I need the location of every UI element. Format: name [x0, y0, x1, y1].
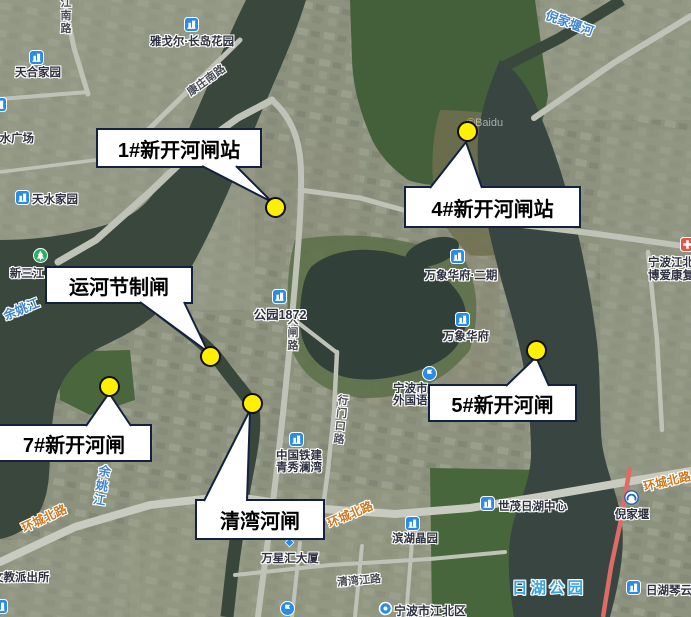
poi-line: 博爱康复 [648, 270, 691, 282]
callout-gate-7: 7#新开河闸 [0, 424, 152, 462]
poi-tiejian-qingxiulanwan[interactable]: 中国铁建 青秀澜湾 [276, 450, 322, 474]
callout-gate-5: 5#新开河闸 [428, 384, 577, 422]
poi-line: 中国铁建 [276, 450, 322, 462]
callout-canal-control-gate: 运河节制闸 [45, 266, 193, 304]
district-icon[interactable] [378, 601, 393, 616]
school-icon[interactable] [422, 366, 437, 381]
building-icon[interactable] [480, 496, 495, 511]
poi-rihu-qinyun[interactable]: 日湖琴云 [646, 582, 691, 598]
marker-dot-qingwan-gate [242, 393, 263, 414]
marker-dot-gate-7 [99, 376, 120, 397]
poi-gongyuan-1872[interactable]: 公园1872 [254, 304, 307, 323]
park-icon[interactable] [33, 248, 48, 263]
building-icon[interactable] [289, 432, 304, 447]
poi-ningbo-waiguoyu[interactable]: 宁波市 外国语 [393, 383, 428, 407]
poi-wanxianghuafu[interactable]: 万象华府 [443, 328, 489, 344]
callout-qingwan-gate: 清湾河闸 [195, 499, 325, 540]
metro-icon[interactable] [624, 490, 639, 505]
road-label-jiangnanlu: 江南路 [57, 0, 73, 36]
map-viewport[interactable]: 余姚江 余姚江 倪家堰河 日湖公园 环城北路 环城北路 环城北路 康庄南路 江南… [0, 0, 691, 617]
school-icon[interactable] [280, 601, 295, 616]
building-icon[interactable] [15, 190, 30, 205]
poi-shimao-rihu-center[interactable]: 世茂日湖中心 [498, 498, 567, 514]
poi-nijiayan-station[interactable]: 倪家堰 [615, 506, 650, 522]
building-icon[interactable] [405, 516, 420, 531]
poi-tianshui-home[interactable]: 天水家园 [32, 191, 78, 207]
poi-tianhejiayuan[interactable]: 天合家园 [15, 64, 61, 80]
poi-wanxianghuafu-2[interactable]: 万象华府·二期 [425, 267, 498, 283]
building-icon[interactable] [0, 599, 8, 614]
callout-gate-station-1: 1#新开河闸站 [96, 128, 262, 168]
callout-label: 1#新开河闸站 [118, 134, 240, 163]
callout-gate-station-4: 4#新开河闸站 [404, 186, 581, 228]
poi-tianshui-plaza[interactable]: 天水广场 [0, 130, 34, 146]
callout-label: 运河节制闸 [69, 271, 169, 300]
poi-binhu-jingyuan[interactable]: 滨湖晶园 [392, 530, 438, 546]
poi-line: 宁波市 [393, 383, 428, 395]
poi-line: 外国语 [393, 395, 428, 407]
callout-label: 7#新开河闸 [23, 429, 125, 458]
building-icon[interactable] [29, 50, 44, 65]
marker-dot-canal-control-gate [200, 346, 221, 367]
poi-line: 宁波江北 [648, 257, 691, 269]
marker-dot-gate-5 [526, 340, 547, 361]
building-icon[interactable] [450, 249, 465, 264]
callout-label: 4#新开河闸站 [431, 193, 553, 222]
building-icon[interactable] [272, 289, 287, 304]
marker-dot-gate-station-1 [265, 197, 286, 218]
marker-dot-gate-station-4 [457, 121, 478, 142]
poi-line: 青秀澜湾 [276, 462, 322, 474]
callout-label: 5#新开河闸 [451, 389, 553, 418]
building-icon[interactable] [184, 17, 199, 32]
poi-boai-hospital[interactable]: 宁波江北 博爱康复 [648, 257, 691, 283]
poi-paichusuo[interactable]: 文教派出所 [0, 569, 50, 585]
building-icon[interactable] [0, 97, 7, 112]
poi-yageer-changdao[interactable]: 雅戈尔·长岛花园 [150, 33, 234, 49]
park-label-rihu: 日湖公园 [512, 576, 586, 598]
poi-xinsanjiang[interactable]: 新三江 [10, 265, 45, 281]
poi-wanxinghui[interactable]: 万星汇大厦 [261, 550, 319, 566]
callout-label: 清湾河闸 [220, 505, 300, 534]
building-icon[interactable] [455, 312, 470, 327]
poi-jiangbei-district[interactable]: 宁波市江北区 [394, 602, 466, 617]
building-icon[interactable] [626, 580, 641, 595]
hospital-icon[interactable] [680, 237, 691, 252]
